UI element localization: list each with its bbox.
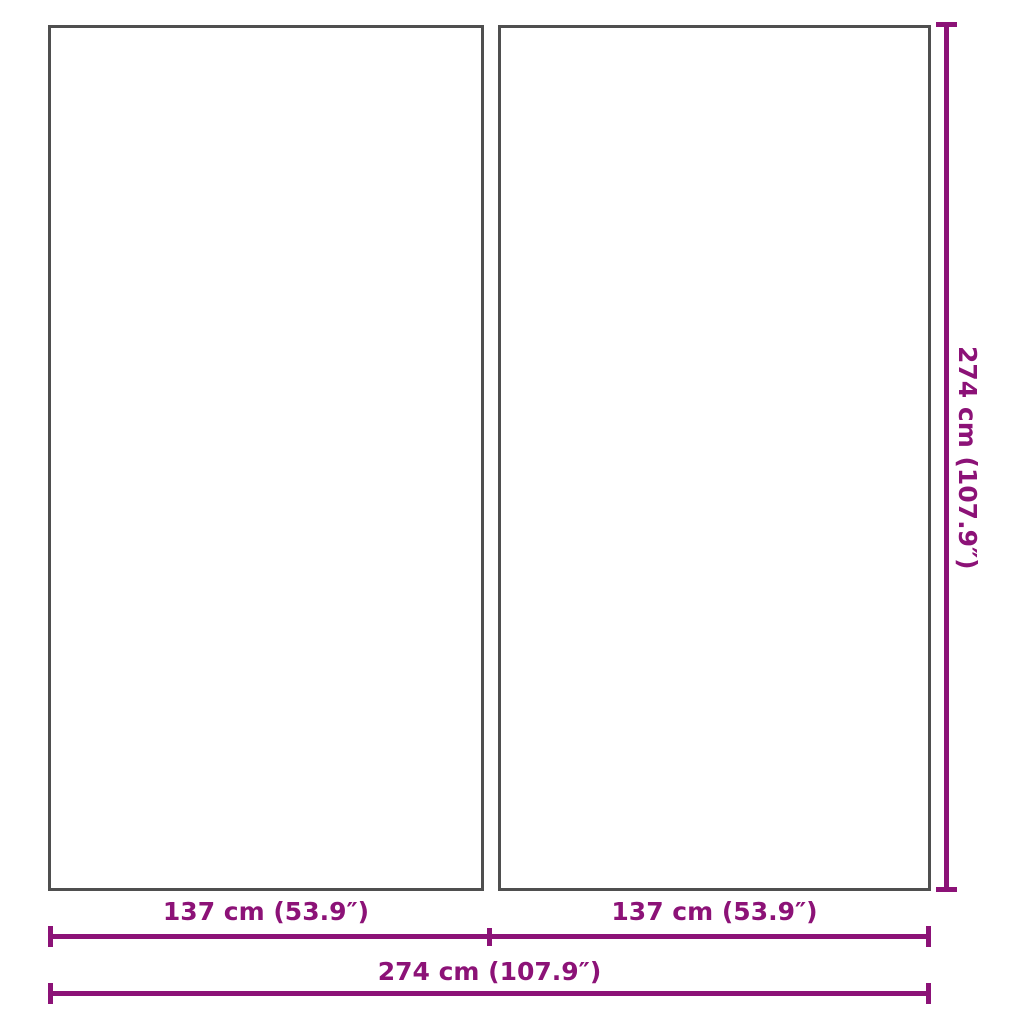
total-width-label: 274 cm (107.9″) bbox=[48, 957, 931, 986]
product-dimension-diagram: 274 cm (107.9″) 137 cm (53.9″) 137 cm (5… bbox=[0, 0, 1024, 1024]
total-width-right-tick bbox=[926, 983, 931, 1004]
width-dimension-middle-tick bbox=[487, 928, 492, 946]
total-width-line bbox=[48, 991, 931, 996]
right-panel bbox=[498, 25, 931, 891]
total-width-left-tick bbox=[48, 983, 53, 1004]
height-dimension-line bbox=[944, 22, 949, 892]
width-dimension-right-tick bbox=[926, 926, 931, 947]
left-panel bbox=[48, 25, 484, 891]
width-right-label: 137 cm (53.9″) bbox=[498, 897, 931, 926]
height-dimension-label: 274 cm (107.9″) bbox=[953, 25, 982, 891]
width-dimension-left-tick bbox=[48, 926, 53, 947]
width-left-label: 137 cm (53.9″) bbox=[48, 897, 484, 926]
